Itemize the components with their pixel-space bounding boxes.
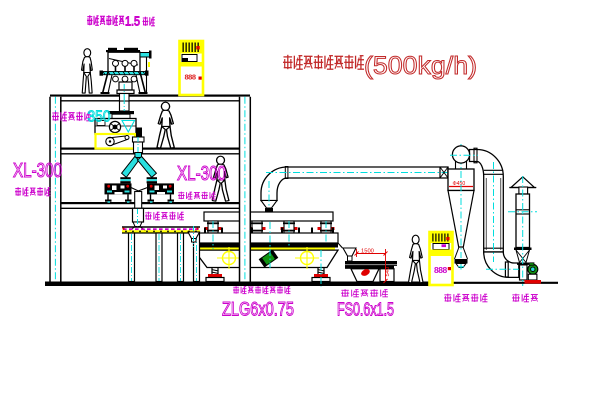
svg-text:Φ450: Φ450: [453, 181, 466, 187]
svg-text:XL-300: XL-300: [13, 160, 62, 182]
svg-text:1500: 1500: [361, 248, 374, 254]
svg-text:540: 540: [385, 267, 391, 277]
svg-text:ZLG6x0.75: ZLG6x0.75: [222, 300, 294, 321]
svg-text:(500kg/h): (500kg/h): [364, 52, 477, 80]
svg-text:888: 888: [185, 73, 196, 82]
svg-text:888: 888: [434, 265, 447, 275]
svg-text:1.5: 1.5: [125, 15, 140, 29]
svg-text:FS0.6x1.5: FS0.6x1.5: [337, 300, 394, 320]
svg-text:350: 350: [88, 109, 111, 126]
svg-text:XL-300: XL-300: [177, 163, 226, 185]
